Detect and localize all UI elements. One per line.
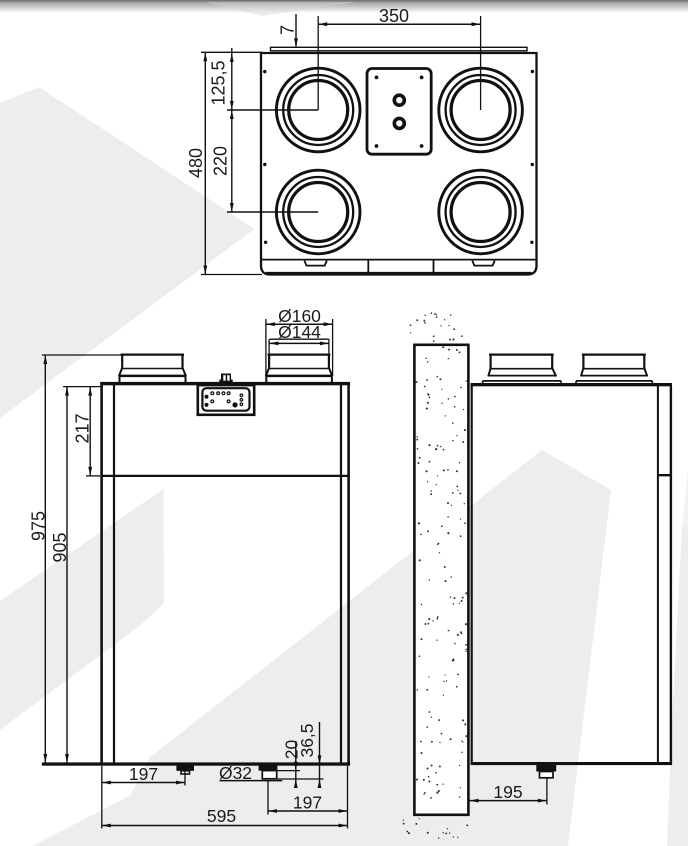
svg-text:Ø144: Ø144 [278,322,321,342]
svg-text:7: 7 [278,25,298,35]
svg-text:36,5: 36,5 [297,723,317,757]
svg-text:197: 197 [293,793,322,813]
svg-text:905: 905 [50,532,70,562]
svg-text:217: 217 [73,413,93,443]
svg-text:197: 197 [129,764,158,784]
svg-text:125,5: 125,5 [209,60,229,105]
svg-text:350: 350 [379,6,409,26]
svg-text:975: 975 [29,511,49,541]
svg-text:480: 480 [186,148,206,178]
svg-text:595: 595 [207,806,236,826]
svg-text:195: 195 [493,782,522,802]
svg-text:220: 220 [211,146,231,176]
